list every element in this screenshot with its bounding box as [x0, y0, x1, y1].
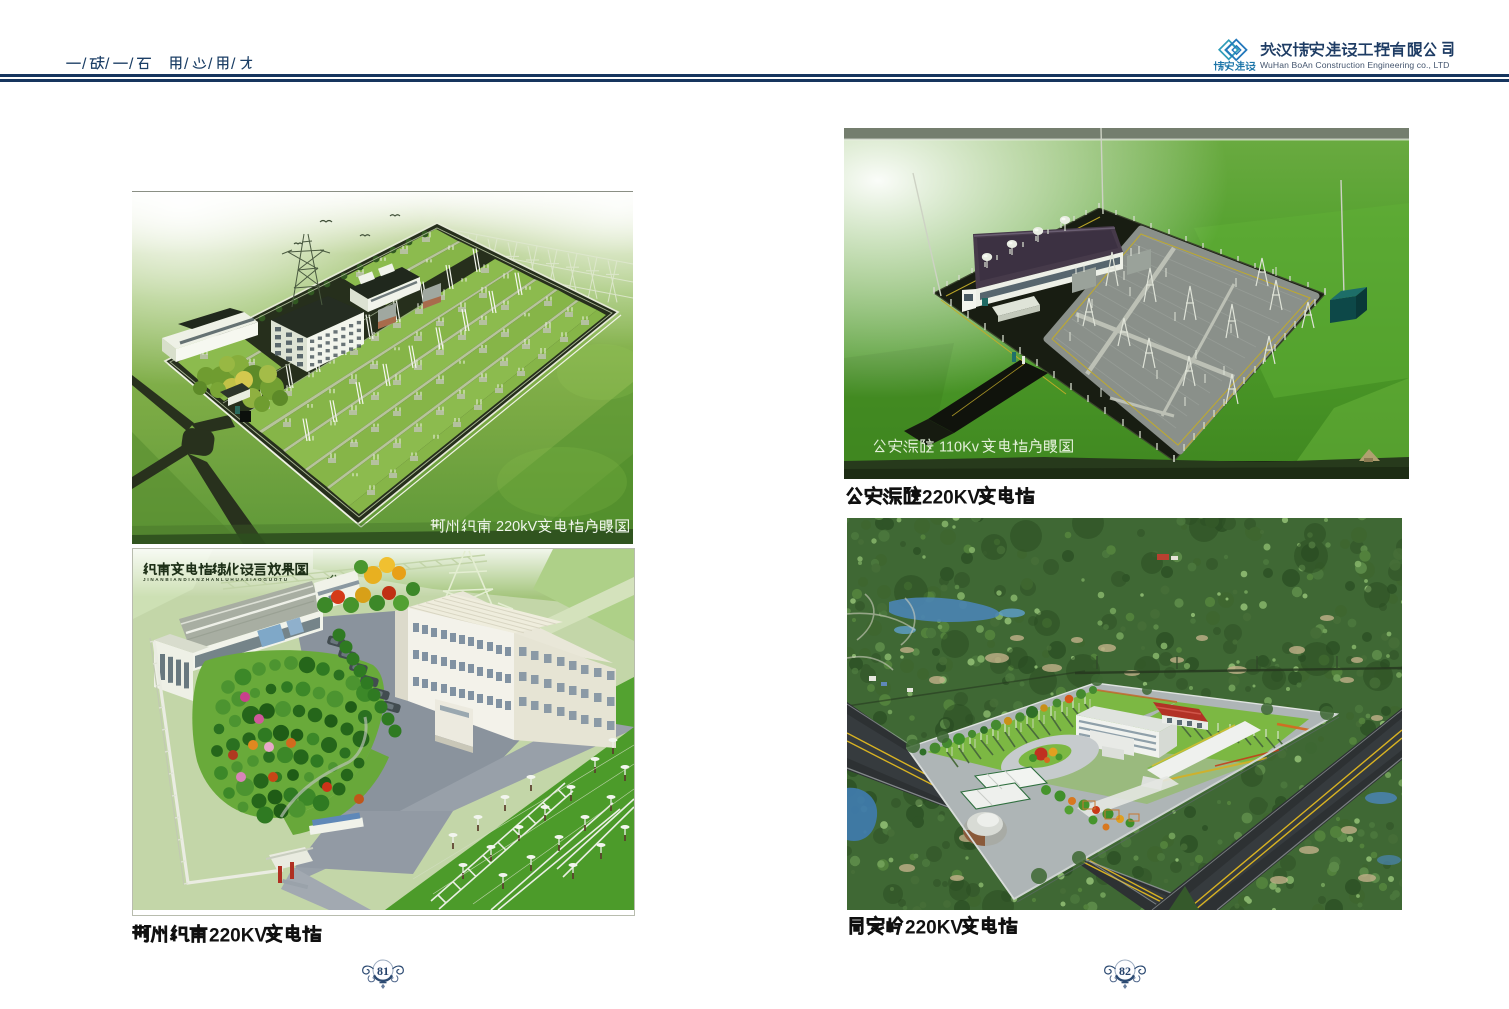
svg-text:/: /: [231, 56, 236, 73]
svg-text:82: 82: [1119, 964, 1131, 978]
svg-text:/: /: [82, 56, 87, 73]
svg-text:220KV: 220KV: [905, 918, 963, 939]
svg-text:81: 81: [377, 964, 389, 978]
svg-text:220KV: 220KV: [922, 488, 980, 509]
svg-text:/: /: [105, 56, 110, 73]
svg-text:/: /: [129, 56, 134, 73]
svg-text:/: /: [184, 56, 189, 73]
svg-text:J I N A N B I A N D I A N Z H: J I N A N B I A N D I A N Z H A N L U H …: [143, 577, 288, 582]
svg-text:220KV: 220KV: [209, 926, 267, 947]
svg-text:/: /: [208, 56, 213, 73]
svg-text:110Kv: 110Kv: [939, 440, 980, 456]
svg-text:220kV: 220kV: [496, 519, 537, 535]
